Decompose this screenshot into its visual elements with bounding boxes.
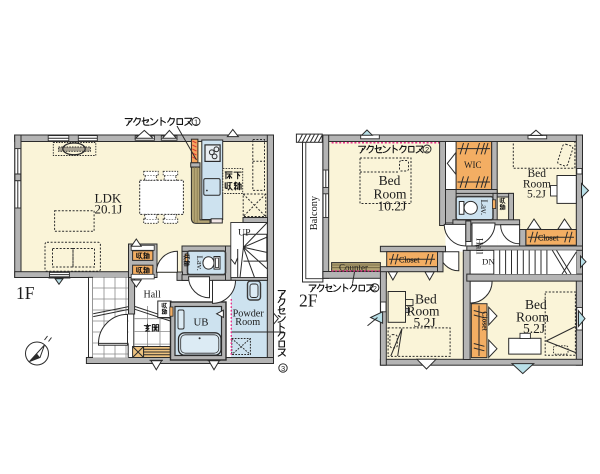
- svg-text:2: 2: [425, 145, 429, 154]
- svg-text:2F: 2F: [299, 291, 318, 311]
- svg-text:Lav.: Lav.: [479, 200, 489, 216]
- svg-text:UP: UP: [238, 228, 251, 239]
- svg-text:10.2J: 10.2J: [378, 199, 407, 214]
- svg-text:DN: DN: [482, 257, 495, 267]
- svg-text:2: 2: [373, 284, 377, 293]
- svg-text:5.2J: 5.2J: [527, 189, 546, 201]
- svg-text:Room: Room: [235, 317, 260, 328]
- svg-text:Lav.: Lav.: [195, 256, 205, 271]
- svg-text:UB: UB: [194, 316, 209, 328]
- svg-text:Hall: Hall: [144, 290, 161, 301]
- svg-text:5.2J: 5.2J: [414, 315, 436, 330]
- svg-text:1: 1: [194, 118, 198, 127]
- svg-text:1F: 1F: [16, 283, 35, 303]
- svg-text:Balcony: Balcony: [309, 195, 320, 230]
- svg-text:5.2J: 5.2J: [523, 321, 545, 336]
- svg-text:3: 3: [281, 364, 285, 373]
- svg-text:Closet: Closet: [538, 234, 559, 243]
- svg-text:20.1J: 20.1J: [95, 202, 123, 217]
- svg-text:Closet: Closet: [481, 312, 490, 332]
- svg-text:Hall: Hall: [474, 238, 484, 255]
- svg-text:Closet: Closet: [399, 255, 420, 264]
- svg-text:WIC: WIC: [464, 160, 482, 170]
